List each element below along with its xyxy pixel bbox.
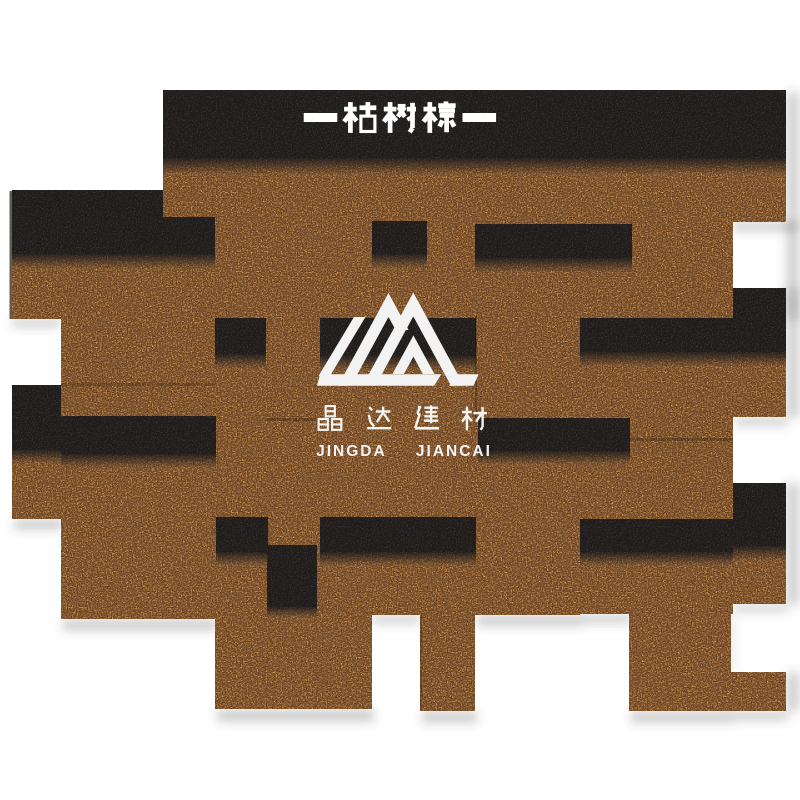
- svg-text:JINGDA JIANCAI: JINGDA JIANCAI: [316, 443, 492, 460]
